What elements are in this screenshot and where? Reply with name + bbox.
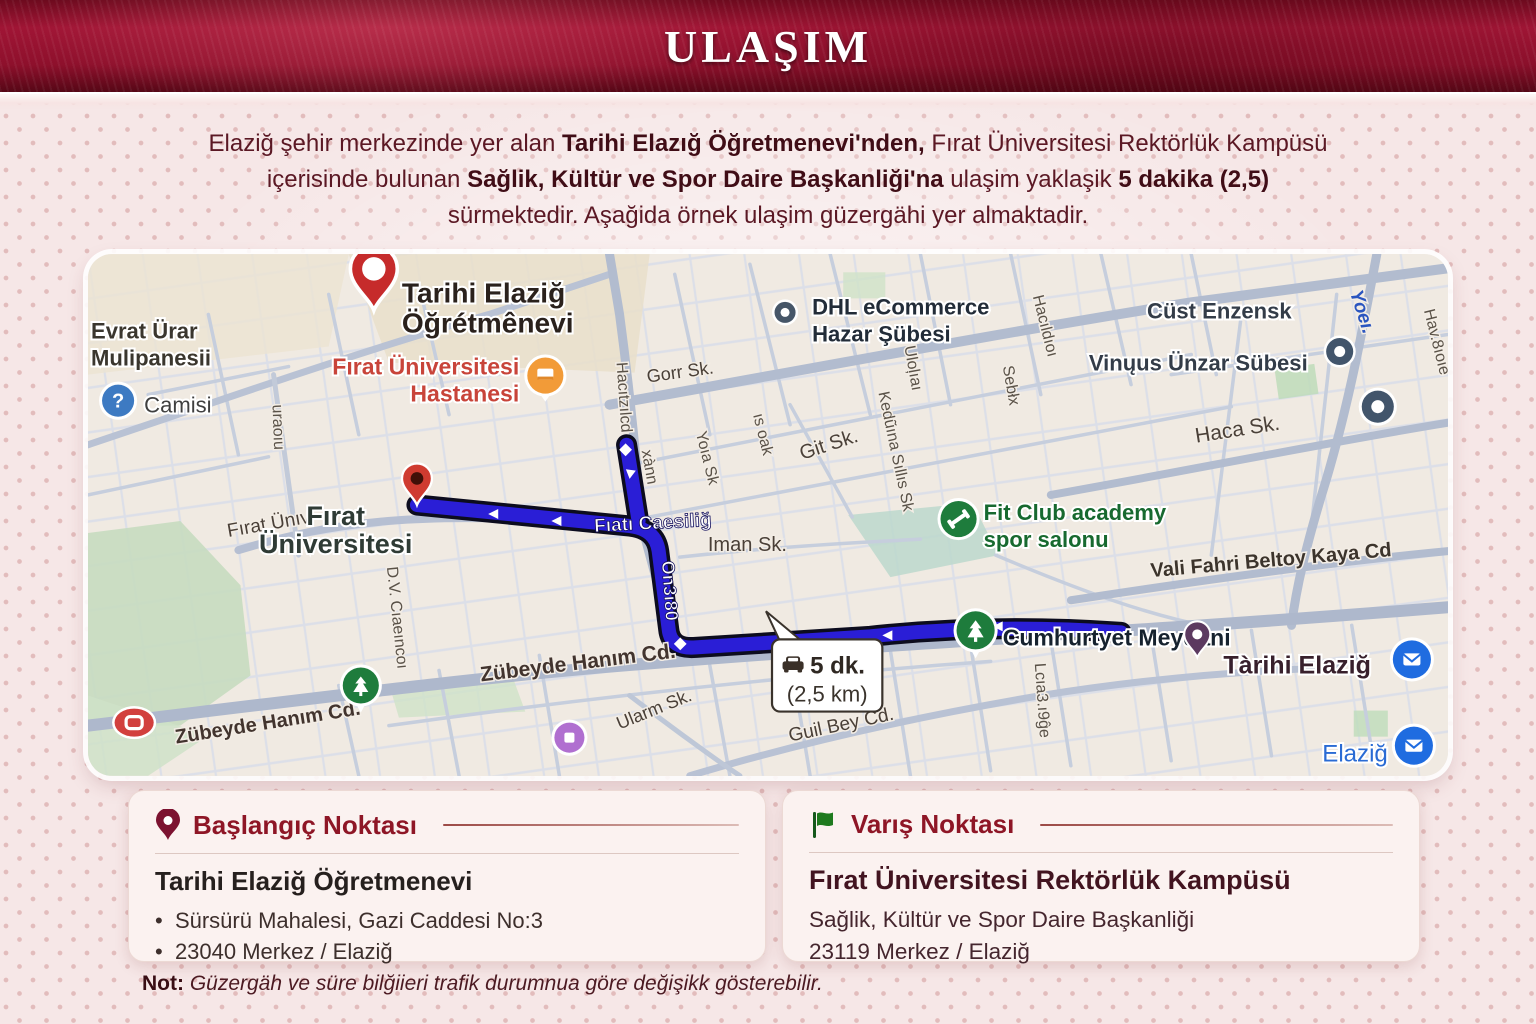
start-address-line-1: • Sürsürü Mahalesi, Gazi Caddesi No:3	[155, 905, 739, 936]
map-canvas: Fıatı Caesiliğ On3ı80 Fırat Ünıv. Gorr S…	[88, 254, 1448, 776]
label-evrat-1: Evrat Ürar	[91, 318, 198, 343]
start-place-name: Tarihi Elaziğ Öğretmenevi	[155, 866, 739, 897]
info-cards: Başlangıç Noktası Tarihi Elaziğ Öğretmen…	[128, 790, 1420, 962]
destination-card-divider	[809, 852, 1393, 853]
footnote-text: Güzergäh ve süre bilğiieri trafik durumn…	[184, 972, 823, 995]
footnote-label: Not:	[142, 972, 184, 995]
header-banner: ULAŞIM	[0, 0, 1536, 92]
mosque-icon: ?	[99, 382, 137, 420]
mail-icon	[1390, 637, 1434, 681]
destination-line-2: 23119 Merkez / Elaziğ	[809, 936, 1393, 968]
intro-line-2: içerisinde bulunan Sağlik, Kültür ve Spo…	[0, 162, 1536, 198]
label-hospital-2: Hastanesi	[410, 381, 519, 407]
hospital-stop-icon	[112, 706, 156, 739]
street-iman: Iman Sk.	[708, 534, 787, 556]
tooltip-duration: 5 dk.	[810, 652, 865, 679]
destination-card-header: Varış Noktası	[809, 809, 1393, 840]
label-fitclub-1: Fit Club academy	[984, 500, 1167, 525]
label-fitclub-2: spor salonu	[984, 527, 1109, 552]
label-evrat-2: Mulipanesii	[91, 346, 211, 371]
label-camisi: Camisi	[144, 393, 211, 418]
gym-icon	[937, 498, 979, 540]
street-v8: uraoıu	[269, 404, 289, 450]
route-map: Fıatı Caesiliğ On3ı80 Fırat Ünıv. Gorr S…	[88, 254, 1448, 776]
intro-paragraph: Elaziğ şehir merkezinde yer alan Tarihi …	[0, 126, 1536, 234]
start-card-header: Başlangıç Noktası	[155, 809, 739, 841]
label-cust: Cüst Enzensk	[1147, 298, 1292, 323]
dhl-icon	[772, 299, 798, 325]
start-pin-card-icon	[155, 809, 181, 841]
destination-line-1: Sağlik, Kültür ve Spor Daire Başkanliği	[809, 904, 1393, 936]
start-header-rule	[443, 824, 739, 826]
label-start-2: Öğrétmênevi	[402, 307, 574, 338]
transit-stop-icon	[1359, 388, 1397, 426]
label-university-2: Üniversitesi	[259, 528, 412, 559]
banner-separator	[0, 92, 1536, 110]
destination-card-title: Varış Noktası	[851, 809, 1014, 840]
label-vinuus: Vinųus Ünzar Sübesi	[1089, 351, 1308, 376]
label-hospital-1: Fırat Üniversitesi	[332, 354, 519, 380]
footnote: Not: Güzergäh ve süre bilğiieri trafik d…	[142, 972, 1342, 996]
label-tarihi-elazig: Tàrihi Elaziğ	[1223, 651, 1371, 679]
label-start-1: Tarihi Elaziğ	[402, 277, 565, 308]
start-card-divider	[155, 853, 739, 854]
label-elazig: Elaziğ	[1322, 741, 1388, 768]
intro-line-3: sürmektedir. Aşağida örnek ulaşim güzerg…	[0, 198, 1536, 234]
destination-card: Varış Noktası Fırat Üniversitesi Rektörl…	[782, 790, 1420, 962]
transit-stop-icon	[1324, 335, 1356, 367]
label-university-1: Fırat	[306, 500, 365, 531]
start-card-title: Başlangıç Noktası	[193, 810, 417, 841]
question-glyph: ?	[112, 391, 124, 413]
destination-place-name: Fırat Üniversitesi Rektörlük Kampüsü	[809, 865, 1393, 896]
label-dhl-1: DHL eCommerce	[812, 294, 989, 319]
metro-icon	[551, 720, 587, 756]
intro-line-1: Elaziğ şehir merkezinde yer alan Tarihi …	[0, 126, 1536, 162]
start-card: Başlangıç Noktası Tarihi Elaziğ Öğretmen…	[128, 790, 766, 962]
page-title: ULAŞIM	[664, 20, 872, 73]
destination-header-rule	[1040, 824, 1393, 826]
start-address-line-2: • 23040 Merkez / Elaziğ	[155, 936, 739, 967]
route-street-label-vertical: On3ı80	[658, 560, 682, 621]
mail-icon	[1392, 724, 1436, 768]
label-dhl-2: Hazar Şübesi	[812, 321, 950, 346]
flag-icon	[809, 810, 839, 840]
tooltip-distance: (2,5 km)	[787, 682, 868, 707]
